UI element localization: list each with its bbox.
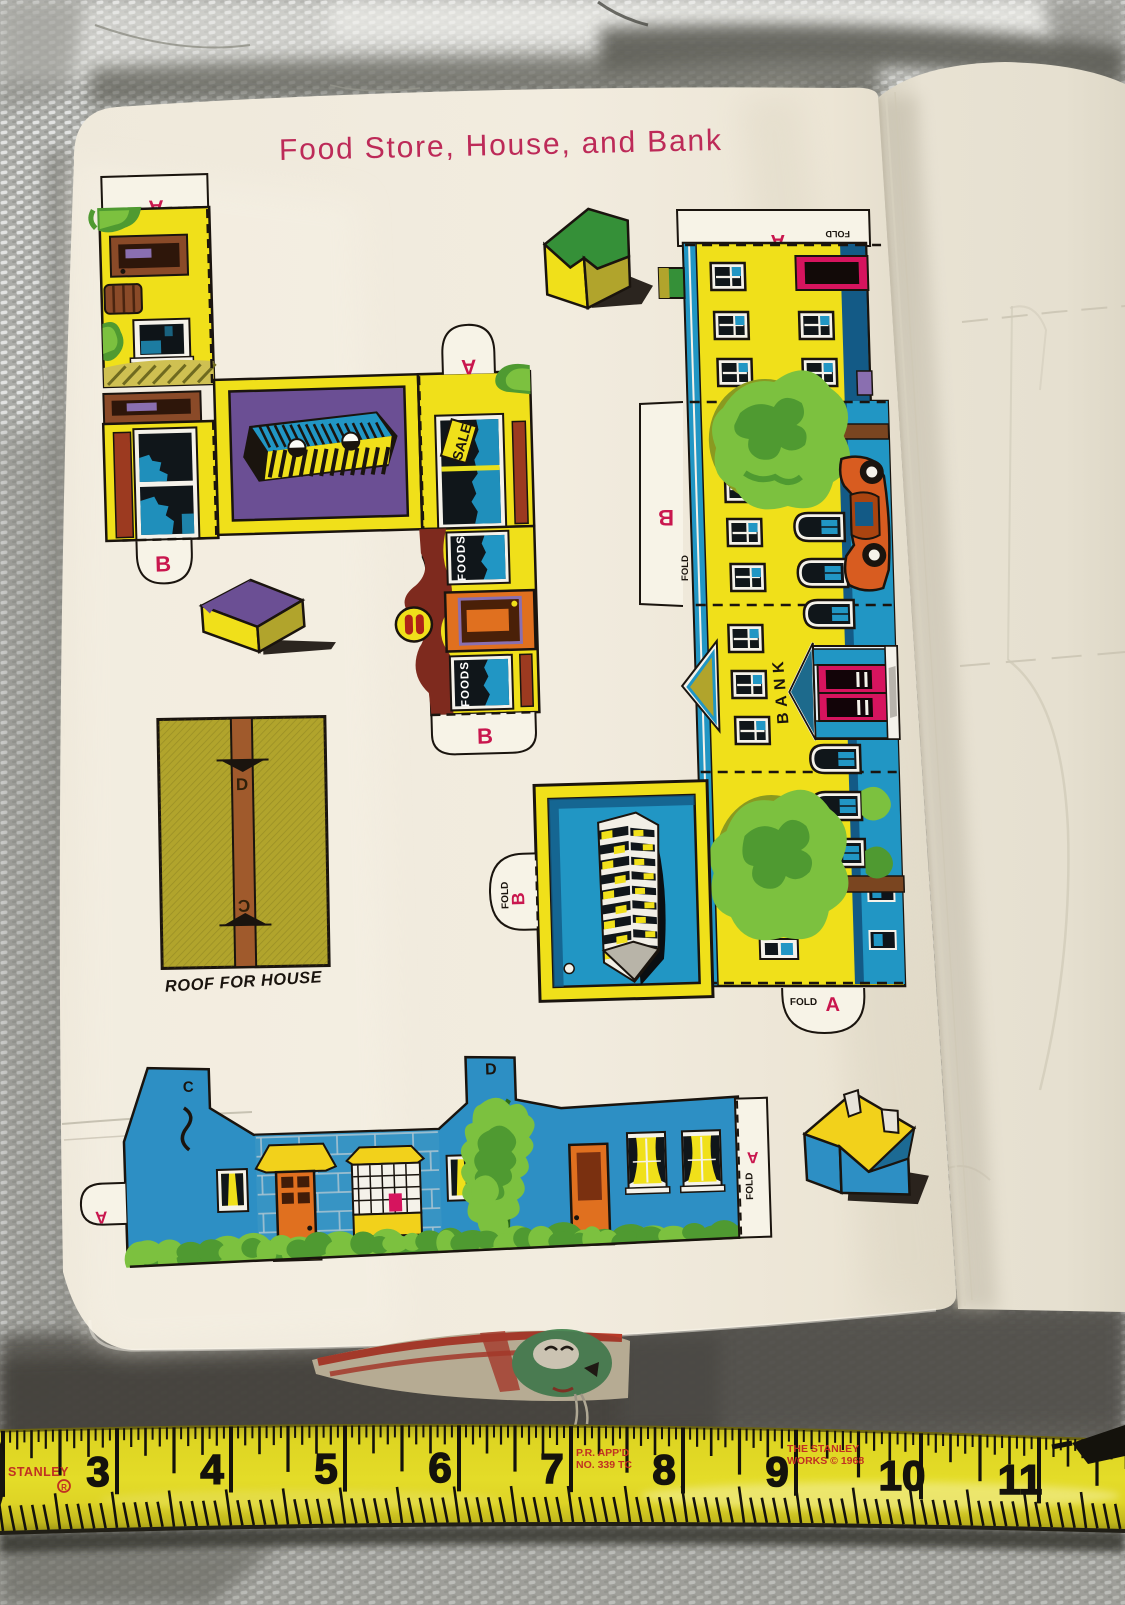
svg-text:5: 5 (314, 1445, 337, 1492)
svg-text:9: 9 (765, 1448, 788, 1495)
svg-text:A: A (773, 695, 791, 708)
svg-text:6: 6 (428, 1444, 451, 1491)
svg-text:FOLD: FOLD (744, 1172, 756, 1200)
svg-text:FOODS: FOODS (455, 535, 468, 581)
svg-text:10: 10 (879, 1452, 926, 1499)
svg-text:STANLEY: STANLEY (8, 1465, 69, 1479)
svg-text:B: B (477, 723, 494, 748)
svg-text:R: R (61, 1483, 67, 1492)
svg-text:A: A (461, 355, 477, 378)
svg-text:B: B (775, 712, 793, 724)
svg-text:FOODS: FOODS (459, 661, 472, 707)
svg-text:11: 11 (998, 1456, 1042, 1503)
svg-text:P.R. APP'D: P.R. APP'D (576, 1447, 630, 1459)
svg-text:FOLD: FOLD (680, 555, 691, 581)
svg-text:B: B (658, 505, 674, 530)
svg-text:3: 3 (86, 1448, 109, 1495)
svg-text:FOLD: FOLD (790, 997, 818, 1008)
svg-text:7: 7 (540, 1445, 563, 1492)
svg-text:8: 8 (652, 1446, 675, 1493)
svg-text:C: C (183, 1079, 195, 1096)
svg-text:WORKS © 1968: WORKS © 1968 (787, 1455, 864, 1467)
svg-text:K: K (770, 661, 788, 674)
svg-text:A: A (746, 1148, 759, 1165)
svg-text:D: D (485, 1061, 497, 1078)
svg-text:D: D (236, 775, 249, 794)
svg-text:4: 4 (200, 1446, 224, 1493)
svg-text:N: N (772, 678, 790, 690)
svg-text:B: B (508, 892, 528, 906)
svg-text:FOLD: FOLD (825, 229, 850, 239)
svg-text:NO. 339 TC: NO. 339 TC (576, 1459, 632, 1471)
svg-text:B: B (155, 551, 172, 576)
svg-text:A: A (825, 994, 840, 1016)
svg-text:C: C (238, 896, 251, 915)
svg-text:THE STANLEY: THE STANLEY (787, 1443, 859, 1455)
svg-text:A: A (95, 1207, 108, 1226)
